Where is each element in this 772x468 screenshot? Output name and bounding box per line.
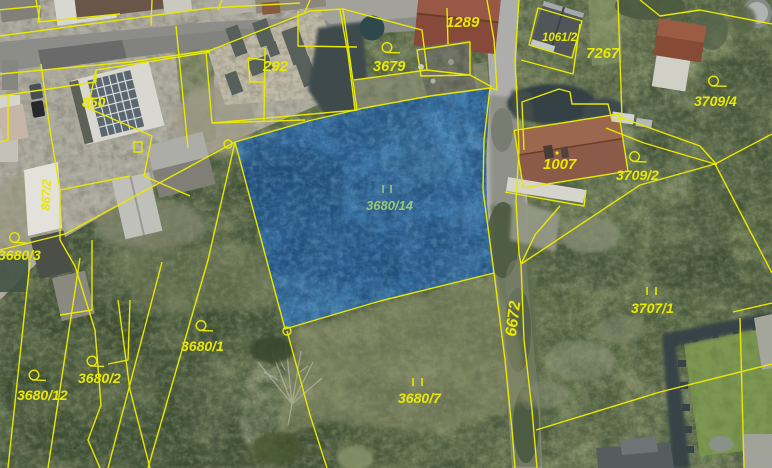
svg-text:3679: 3679	[373, 59, 405, 75]
svg-text:3709/4: 3709/4	[694, 93, 737, 109]
svg-text:1289: 1289	[446, 14, 480, 31]
svg-text:850: 850	[82, 94, 106, 110]
svg-text:3707/1: 3707/1	[631, 300, 674, 316]
svg-text:7267: 7267	[586, 45, 620, 62]
svg-text:3680/1: 3680/1	[181, 338, 224, 354]
svg-text:1007: 1007	[543, 156, 577, 173]
svg-text:1061/2: 1061/2	[542, 32, 578, 44]
svg-text:3680/3: 3680/3	[0, 247, 41, 263]
svg-text:867/2: 867/2	[39, 179, 54, 211]
svg-text:3680/12: 3680/12	[17, 387, 68, 403]
svg-text:3680/7: 3680/7	[398, 390, 442, 406]
svg-text:292: 292	[262, 58, 289, 75]
svg-text:3680/14: 3680/14	[366, 198, 414, 213]
svg-text:3709/2: 3709/2	[616, 167, 659, 183]
svg-text:3680/2: 3680/2	[78, 370, 121, 386]
